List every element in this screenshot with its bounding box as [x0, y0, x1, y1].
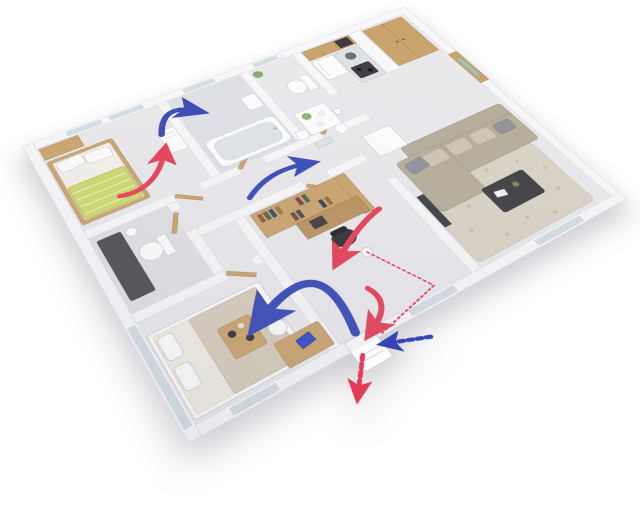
arrow-outdoor-intake: [388, 325, 431, 356]
apartment-floorplan: [16, 4, 640, 492]
render-canvas: [0, 0, 640, 515]
isometric-tilt: [16, 4, 640, 492]
scene-wrapper: [60, 0, 584, 444]
